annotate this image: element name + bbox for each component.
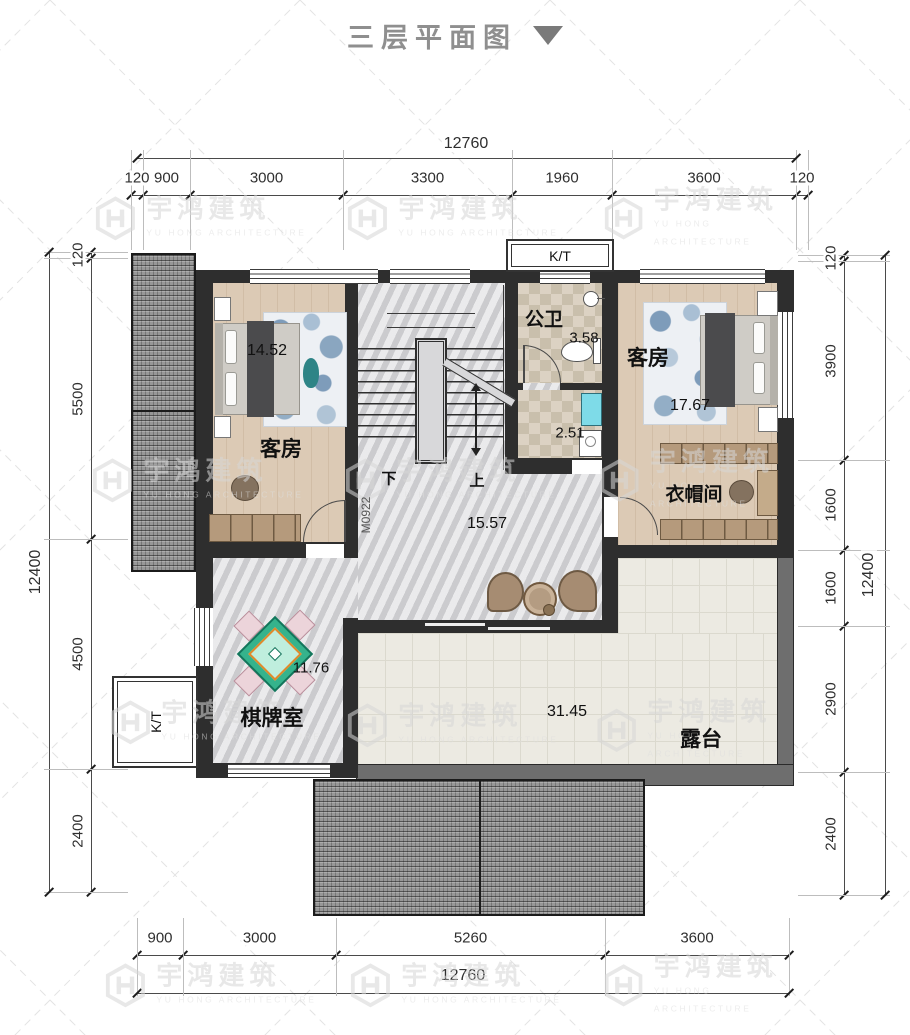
chess-label: 棋牌室 <box>241 702 304 732</box>
hall-area: 15.57 <box>467 515 507 533</box>
collapse-triangle-icon[interactable] <box>533 26 563 45</box>
guest2-area: 17.67 <box>670 397 710 415</box>
kt-left-label: K/T <box>148 711 164 733</box>
kt-top-label: K/T <box>549 248 571 264</box>
bath-area: 3.58 <box>569 330 598 347</box>
stair-up-label: 上 <box>469 470 484 491</box>
terrace-area: 31.45 <box>547 703 587 721</box>
guest1-area: 14.52 <box>247 342 287 360</box>
terrace-label: 露台 <box>680 723 722 753</box>
laundry-area: 2.51 <box>555 425 584 442</box>
bath-label: 公卫 <box>525 305 563 332</box>
page-title: 三层平面图 <box>347 16 517 55</box>
closet-label: 衣帽间 <box>665 480 722 507</box>
guest1-label: 客房 <box>260 433 302 463</box>
door-code-label: M0922 <box>359 497 373 534</box>
guest2-label: 客房 <box>627 342 669 372</box>
drawing-title-bar: 三层平面图 <box>0 16 910 55</box>
stair-down-label: 下 <box>381 468 396 489</box>
label-layer: 客房 14.52 公卫 3.58 2.51 客房 17.67 衣帽间 15.57… <box>0 0 910 1035</box>
floor-plan-sheet: 宇鸿建筑 YU HONG ARCHITECTURE 宇鸿建筑 YU HONG A… <box>0 0 910 1035</box>
chess-area: 11.76 <box>293 660 329 677</box>
